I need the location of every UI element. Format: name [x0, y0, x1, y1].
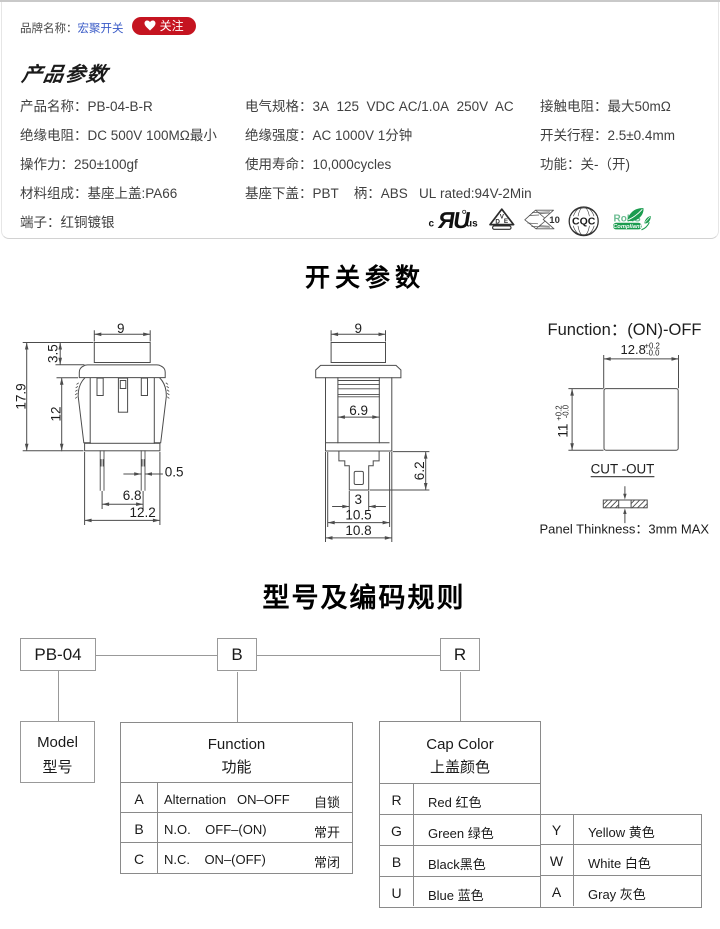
svg-text:6.2: 6.2: [412, 461, 427, 480]
svg-text:3: 3: [354, 492, 362, 507]
svg-text:us: us: [466, 219, 478, 230]
svg-text:6.9: 6.9: [349, 403, 368, 418]
svg-text:11: 11: [556, 424, 571, 438]
svg-text:Function：(ON)-OFF: Function：(ON)-OFF: [548, 321, 702, 339]
svg-text:E: E: [504, 218, 508, 225]
svg-text:0.5: 0.5: [165, 465, 184, 480]
svg-text:12.8: 12.8: [621, 342, 646, 357]
svg-text:10: 10: [549, 215, 560, 226]
svg-text:10.8: 10.8: [345, 523, 371, 538]
svg-text:12.2: 12.2: [130, 505, 156, 520]
svg-text:c: c: [429, 219, 435, 230]
svg-text:-0.0: -0.0: [646, 349, 660, 358]
svg-text:9: 9: [117, 321, 125, 336]
svg-text:3.5: 3.5: [46, 344, 61, 363]
svg-text:Panel Thinkness：3mm MAX: Panel Thinkness：3mm MAX: [540, 522, 710, 537]
svg-text:10.5: 10.5: [345, 508, 371, 523]
svg-text:12: 12: [49, 406, 64, 421]
svg-text:Compliant: Compliant: [613, 224, 642, 230]
svg-text:17.9: 17.9: [14, 383, 29, 409]
svg-text:CQC: CQC: [572, 216, 596, 228]
svg-text:D: D: [495, 218, 500, 225]
svg-text:6.8: 6.8: [123, 488, 142, 503]
svg-text:-0.0: -0.0: [562, 404, 571, 418]
svg-text:9: 9: [355, 321, 363, 336]
svg-text:CUT -OUT: CUT -OUT: [591, 461, 655, 476]
